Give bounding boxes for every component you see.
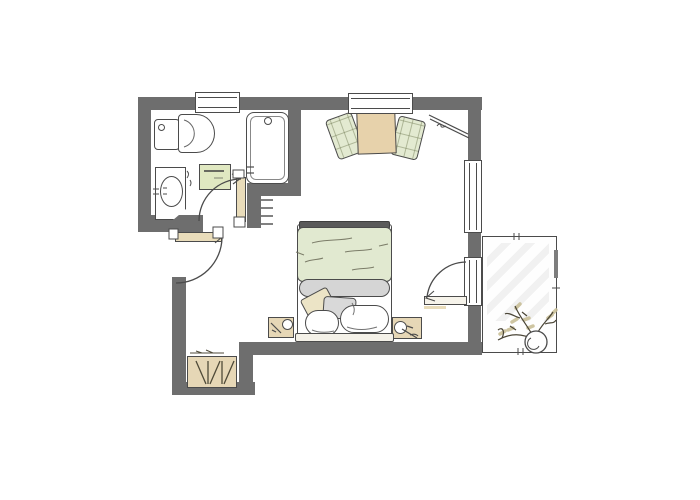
wardrobe [187,356,237,388]
window-glazing-lines [351,98,410,109]
nightstand-left-lamp [282,319,293,330]
wall-stub-vertical [247,196,261,228]
wall-alcove-right [239,342,253,395]
top-right-window [348,93,413,114]
top-left-window [195,92,240,113]
toilet-bowl [178,114,215,153]
bed-white-pillow-right [340,305,389,333]
washbasin-basin [160,176,183,207]
balcony-door-threshold [424,306,446,309]
wall-left-lower [172,277,186,395]
dining-table [356,111,396,154]
bathroom-door-leaf [236,177,246,222]
wall-right-upper [468,97,481,162]
bathtub-inner-rim [250,116,285,180]
wall-right-lower [468,305,481,355]
wall-top [138,97,482,110]
entrance-door-leaf [175,232,222,242]
wall-right-middle [468,232,481,258]
corner-rod [429,115,469,138]
bathtub-drain [264,117,272,125]
toilet-tank [154,119,180,150]
wall-bottom [253,342,482,355]
balcony-door-leaf [424,296,467,305]
bathroom-storage-cabinet [199,164,231,190]
scribble-mark [437,124,446,127]
nightstand-right-lamp [394,321,407,334]
wall-left-upper [138,97,151,232]
wall-under-bathtub [247,183,301,196]
towel-rail [261,200,273,224]
door-frame-lines [469,260,477,303]
bed-green-duvet [297,227,392,282]
right-wall-window [464,160,482,233]
floor-plan [0,0,700,500]
bed-headboard-bar [295,333,394,342]
window-glazing-lines [469,163,477,230]
balcony-floor-hatch [487,243,549,321]
toilet-flush-button [158,124,165,131]
balcony-rail-pier [554,250,558,278]
balcony [482,236,557,353]
window-glazing-lines [198,97,237,108]
